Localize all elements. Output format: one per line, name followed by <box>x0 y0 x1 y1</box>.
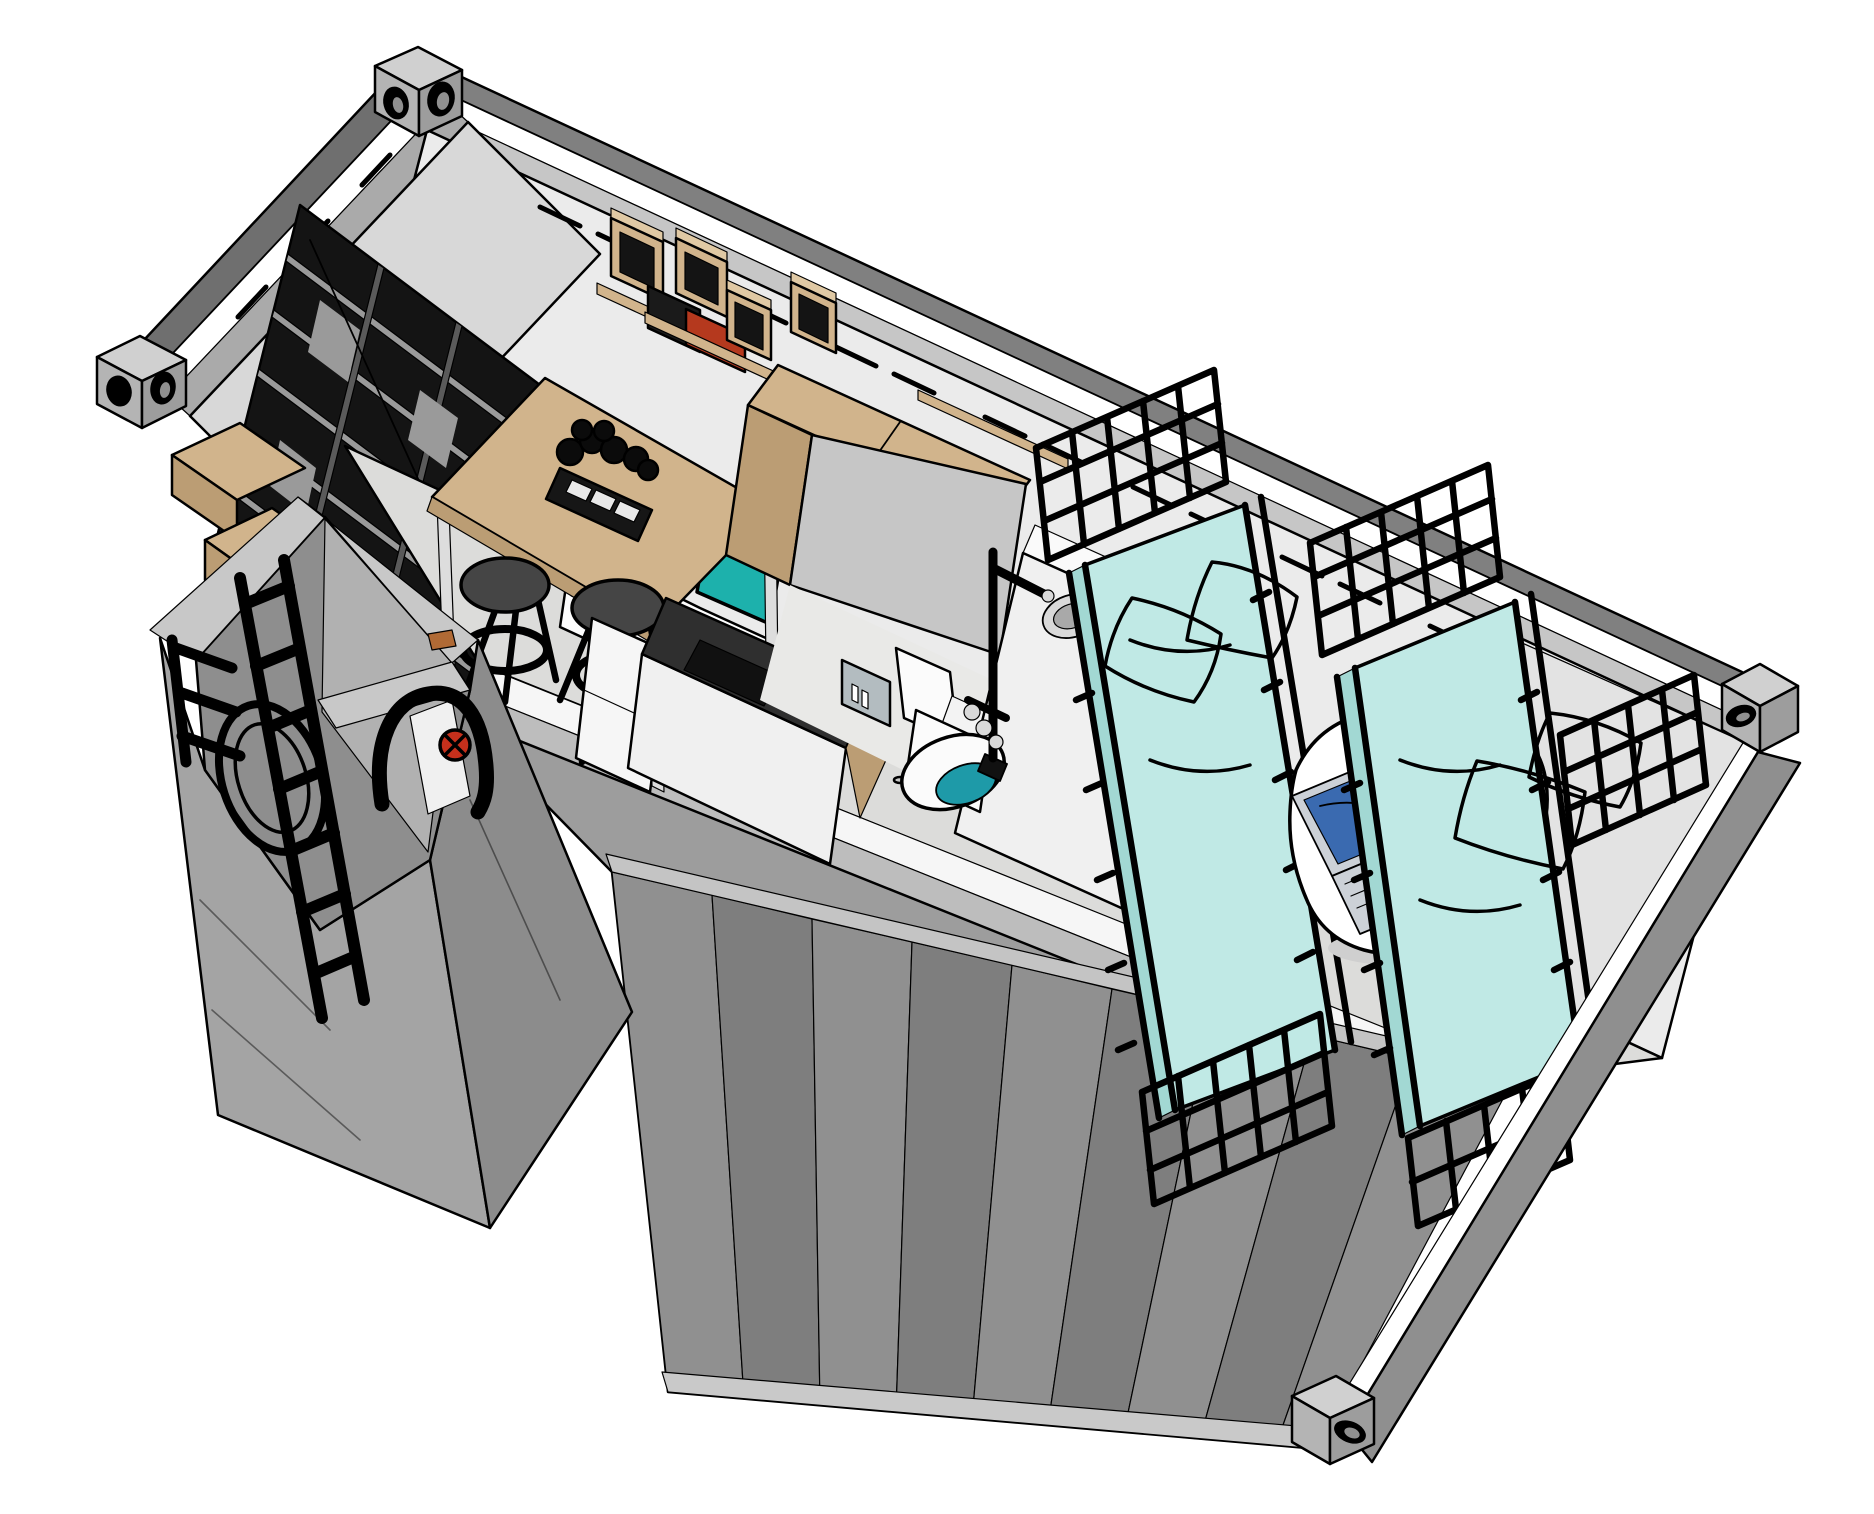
tuft <box>572 420 592 440</box>
shower-joint <box>1042 590 1054 602</box>
shower-knob <box>989 735 1003 749</box>
render-viewport <box>0 0 1874 1514</box>
toiletry-bottle <box>862 690 868 709</box>
stool-seat <box>461 558 549 612</box>
toiletry-bottle <box>852 684 858 703</box>
stool-seat <box>572 580 664 636</box>
tuft <box>594 421 614 441</box>
flute <box>812 919 912 1412</box>
door-sill <box>428 630 456 650</box>
red-valve-wheel <box>440 730 470 760</box>
tuft <box>638 460 658 480</box>
shower-knob <box>964 704 980 720</box>
render-canvas <box>0 0 1874 1514</box>
shower-knob <box>976 720 992 736</box>
